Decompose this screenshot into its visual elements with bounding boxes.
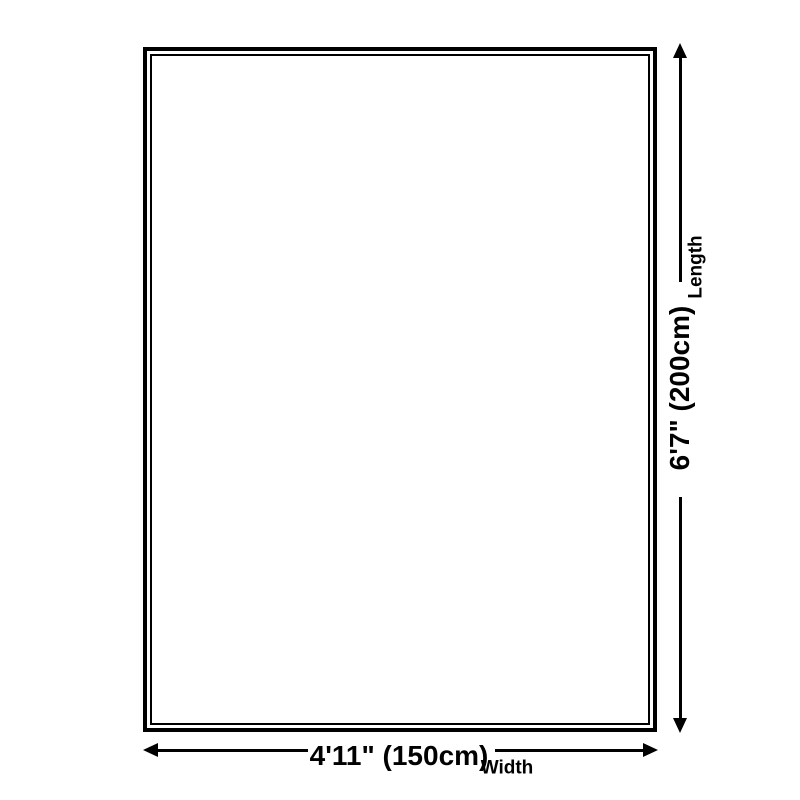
width-arrow-right-line — [495, 749, 644, 752]
length-arrow-bottom-line — [679, 497, 682, 719]
length-dimension-value: 6'7" (200cm) — [666, 306, 694, 471]
dimension-diagram: Length 6'7" (200cm) 4'11" (150cm) Width — [0, 0, 800, 800]
product-outline — [143, 47, 657, 732]
width-axis-label: Width — [481, 759, 534, 778]
product-outline-inner-border — [150, 54, 650, 725]
width-arrow-right-icon — [643, 743, 658, 757]
length-axis-label: Length — [687, 235, 706, 298]
length-arrow-top-line — [679, 56, 682, 282]
width-dimension-value: 4'11" (150cm) — [310, 742, 489, 770]
width-arrow-left-line — [156, 749, 308, 752]
length-arrow-down-icon — [673, 718, 687, 733]
